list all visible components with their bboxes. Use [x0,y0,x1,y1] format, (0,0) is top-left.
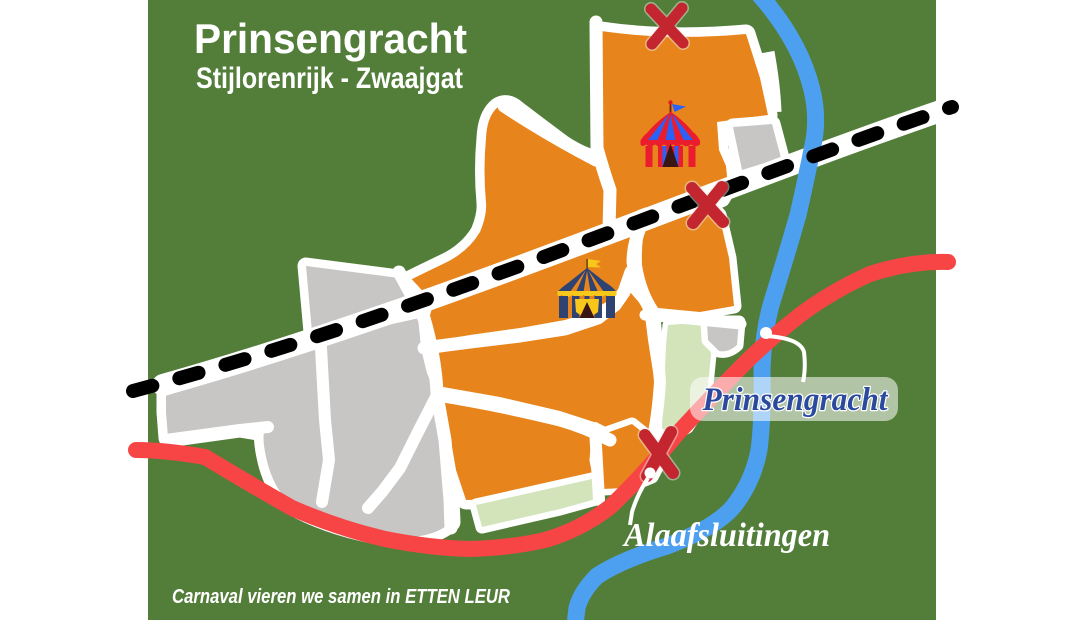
svg-text:Stijlorenrijk - Zwaajgat: Stijlorenrijk - Zwaajgat [196,62,463,95]
svg-text:Carnaval vieren we samen in ET: Carnaval vieren we samen in ETTEN LEUR [172,586,510,608]
svg-text:Prinsengracht: Prinsengracht [194,15,467,62]
svg-text:Prinsengracht: Prinsengracht [702,382,889,418]
svg-text:Alaafsluitingen: Alaafsluitingen [622,517,830,554]
